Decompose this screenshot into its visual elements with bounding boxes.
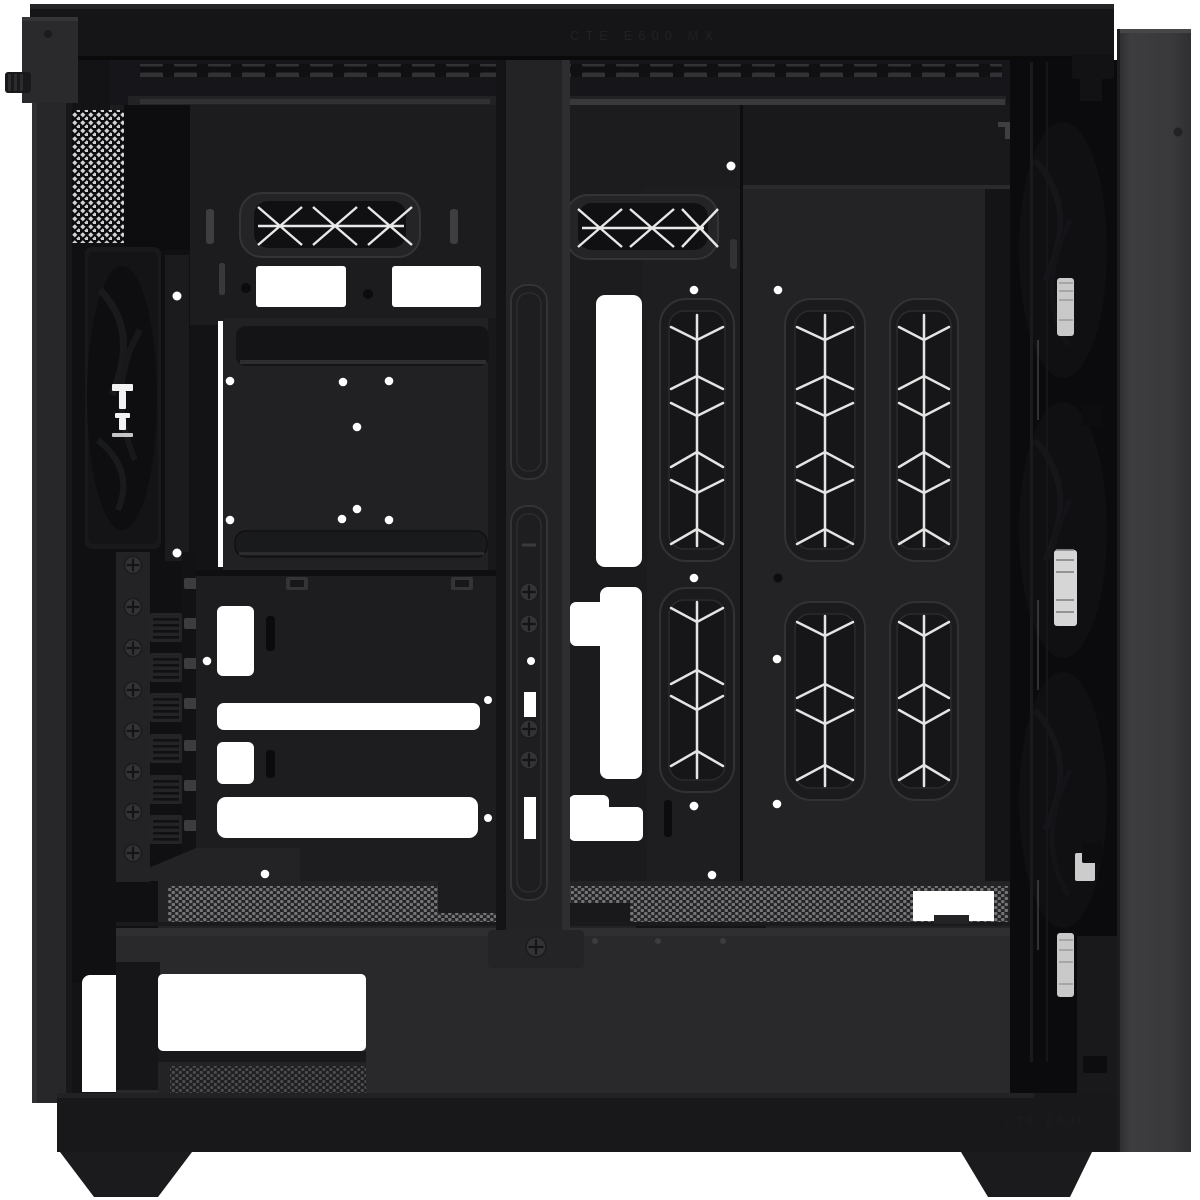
svg-text:CTE E600 MX: CTE E600 MX xyxy=(570,28,719,43)
svg-text:CTE E600: CTE E600 xyxy=(1005,1115,1088,1127)
